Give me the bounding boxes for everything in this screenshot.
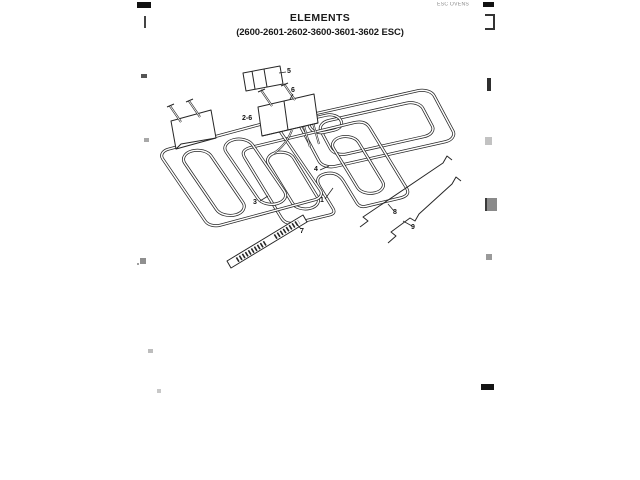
scan-mark-bracket bbox=[485, 14, 495, 30]
scan-speck-left-1 bbox=[141, 74, 147, 78]
callout-2-6: 2-6 bbox=[242, 115, 252, 122]
scan-mark-top-left-dash bbox=[137, 2, 151, 8]
terminal-bar-7 bbox=[227, 215, 307, 268]
cover-plate-5 bbox=[243, 66, 283, 91]
scan-speck-left-2 bbox=[144, 138, 149, 142]
scan-mark-top-left-tick bbox=[144, 16, 146, 28]
callout-5: 5 bbox=[287, 68, 291, 75]
scan-mark-right-1 bbox=[487, 78, 491, 91]
scan-speck-bottom-1 bbox=[148, 349, 153, 353]
callout-8: 8 bbox=[393, 209, 397, 216]
scan-mark-right-4 bbox=[486, 254, 492, 260]
callout-7: 7 bbox=[300, 228, 304, 235]
scan-mark-right-3 bbox=[485, 198, 497, 211]
scan-mark-top-right-dash bbox=[483, 2, 494, 7]
scan-mark-right-2 bbox=[485, 137, 492, 145]
scan-speck-left-4 bbox=[137, 263, 139, 265]
callout-4: 4 bbox=[314, 166, 318, 173]
callout-9: 9 bbox=[411, 224, 415, 231]
scan-speck-bottom-2 bbox=[157, 389, 161, 393]
callout-1: 1 bbox=[320, 197, 324, 204]
scanned-catalog-page: ESC OVENS ELEMENTS (2600-2601-2602-3600-… bbox=[0, 0, 640, 480]
exploded-diagram bbox=[0, 0, 640, 480]
support-rod-9 bbox=[388, 177, 461, 243]
callout-6: 6 bbox=[291, 87, 295, 94]
scan-mark-right-5 bbox=[481, 384, 494, 390]
scan-speck-left-3 bbox=[140, 258, 146, 264]
callout-3: 3 bbox=[253, 199, 257, 206]
element-1 bbox=[240, 120, 411, 225]
element-4 bbox=[296, 88, 457, 169]
mounting-bracket-left bbox=[167, 99, 216, 149]
